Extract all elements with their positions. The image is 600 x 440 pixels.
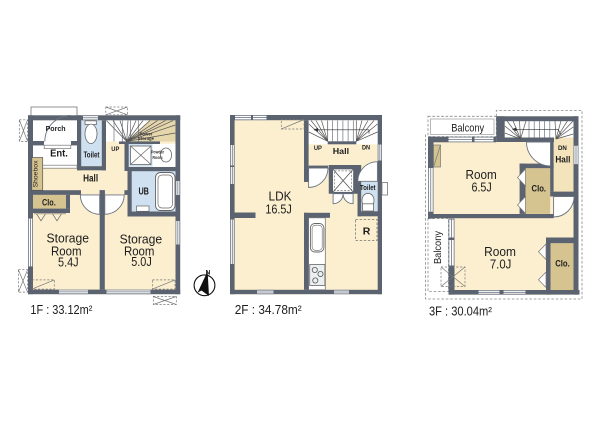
svg-text:Hall: Hall: [83, 174, 98, 185]
svg-text:1F : 33.12m²: 1F : 33.12m²: [30, 303, 92, 317]
svg-text:Balcony: Balcony: [451, 122, 484, 134]
svg-text:2F : 34.78m²: 2F : 34.78m²: [235, 303, 302, 317]
svg-text:Storage: Storage: [138, 136, 154, 142]
svg-text:Clo.: Clo.: [532, 184, 547, 194]
svg-text:Hall: Hall: [333, 146, 349, 156]
svg-text:5.4J: 5.4J: [58, 254, 79, 269]
svg-text:16.5J: 16.5J: [265, 201, 291, 216]
svg-text:Porch: Porch: [46, 124, 66, 133]
svg-text:UP: UP: [314, 145, 323, 152]
svg-text:N: N: [206, 270, 211, 277]
svg-text:7.0J: 7.0J: [490, 256, 512, 271]
svg-text:Clo.: Clo.: [555, 258, 570, 268]
svg-text:Room: Room: [153, 155, 163, 160]
svg-text:R: R: [363, 226, 371, 238]
svg-text:Shoebox: Shoebox: [33, 160, 40, 188]
svg-text:3F : 30.04m²: 3F : 30.04m²: [429, 305, 492, 319]
svg-text:Toilet: Toilet: [84, 149, 100, 159]
svg-text:Toilet: Toilet: [360, 185, 376, 192]
svg-text:Hall: Hall: [555, 155, 570, 165]
svg-text:UP: UP: [111, 146, 119, 153]
svg-text:UB: UB: [138, 187, 149, 198]
svg-text:Powder: Powder: [151, 150, 164, 155]
svg-text:Clo.: Clo.: [42, 198, 56, 208]
svg-text:Balcony: Balcony: [433, 231, 444, 264]
svg-text:6.5J: 6.5J: [472, 180, 492, 195]
svg-text:5.0J: 5.0J: [131, 254, 152, 269]
svg-text:Ent.: Ent.: [50, 148, 68, 159]
svg-text:DN: DN: [362, 145, 370, 152]
svg-text:DN: DN: [558, 145, 567, 152]
